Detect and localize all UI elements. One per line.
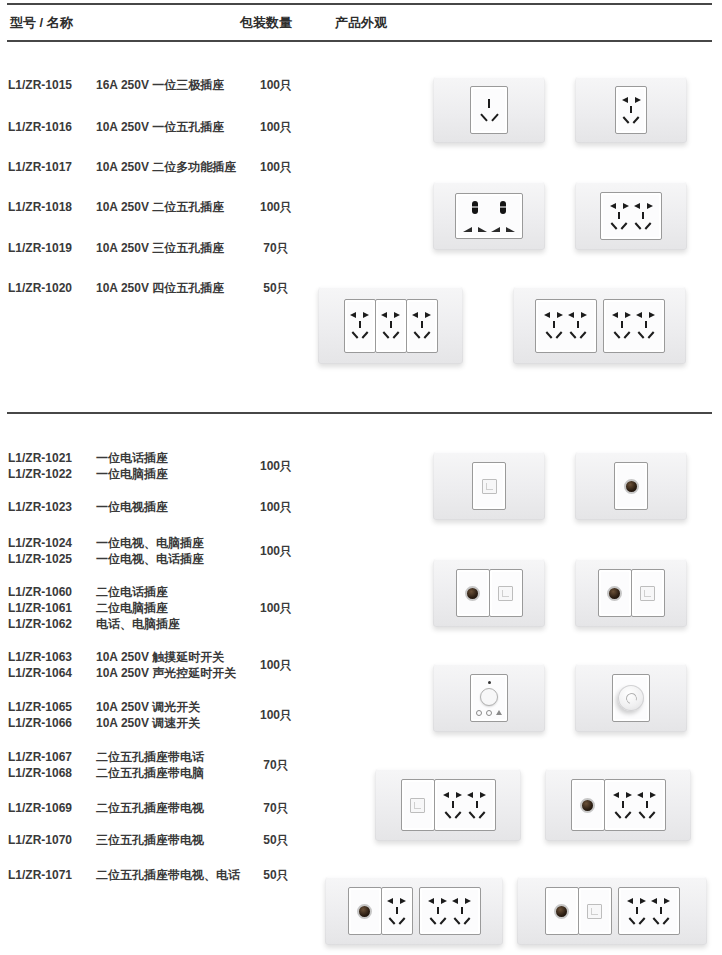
slot-neutral-icon <box>454 811 461 818</box>
module-double-five-hole-socket <box>618 887 680 935</box>
product-image-socket-tv-data-2gang-b <box>575 559 687 627</box>
product-name: 10A 250V 三位五孔插座 <box>96 240 240 256</box>
slot-left-icon <box>613 792 619 798</box>
module-group <box>614 462 648 510</box>
module-group <box>618 887 680 935</box>
slot-earth-icon <box>645 321 647 328</box>
five-hole-face <box>649 898 673 925</box>
product-name: 10A 250V 声光控延时开关 <box>96 665 240 681</box>
slot-live-icon <box>637 331 644 338</box>
slot-live-icon <box>480 113 488 121</box>
slot-live-icon <box>351 331 358 338</box>
module-group <box>612 674 650 722</box>
module-tv-socket <box>348 887 382 935</box>
model-number: L1/ZR-1016 <box>8 119 96 135</box>
slot-left-icon <box>467 792 473 798</box>
slot-left-icon <box>651 898 657 904</box>
model-number: L1/ZR-1060 <box>8 584 96 600</box>
module-tv-socket <box>545 887 579 935</box>
table-row: L1/ZR-1071二位五孔插座带电视、电话50只 <box>8 867 320 883</box>
slot-earth-icon <box>421 321 423 328</box>
model-number: L1/ZR-1023 <box>8 499 96 515</box>
package-quantity: 70只 <box>240 757 312 774</box>
slot-right-icon <box>635 97 641 103</box>
slot-earth-icon <box>476 801 478 808</box>
slot-left-icon <box>443 792 449 798</box>
package-quantity: 100只 <box>240 119 312 136</box>
five-hole-face <box>450 898 474 925</box>
table-row: L1/ZR-101810A 250V 二位五孔插座100只 <box>8 199 320 215</box>
slot-earth-icon <box>437 907 439 914</box>
three-pin-face <box>483 99 496 122</box>
table-row: L1/ZR-101610A 250V 一位五孔插座100只 <box>8 119 320 135</box>
slot-left-icon <box>350 312 356 318</box>
slot-right-icon <box>625 312 631 318</box>
touch-button <box>480 688 498 706</box>
flat-slot-left-icon <box>463 227 472 232</box>
slot-earth-icon <box>636 907 638 914</box>
product-image-socket-3pin-1gang <box>433 77 545 143</box>
model-number: L1/ZR-1071 <box>8 867 96 883</box>
slot-neutral-icon <box>361 331 368 338</box>
product-name: 10A 250V 四位五孔插座 <box>96 280 240 296</box>
module-phone-data-jack <box>401 779 435 831</box>
slot-live-icon <box>635 222 642 229</box>
model-number: L1/ZR-1063 <box>8 649 96 665</box>
package-quantity: 100只 <box>240 77 312 94</box>
product-image-socket-5hole2-tv-phone <box>517 877 707 945</box>
module-group <box>472 462 506 510</box>
slot-right-icon <box>465 898 471 904</box>
table-row: L1/ZR-1063L1/ZR-106410A 250V 触摸延时开关10A 2… <box>8 649 320 681</box>
tv-coax-port-icon <box>554 904 569 919</box>
model-number: L1/ZR-1062 <box>8 616 96 632</box>
slot-neutral-icon <box>423 331 430 338</box>
five-hole-face <box>426 898 450 925</box>
round-pin-slot-icon <box>500 201 506 214</box>
model-number: L1/ZR-1066 <box>8 715 96 731</box>
module-group <box>348 887 413 935</box>
slot-neutral-icon <box>392 331 399 338</box>
slot-live-icon <box>611 222 618 229</box>
slot-left-icon <box>634 203 640 209</box>
table-header: 型号 / 名称 包装数量 产品外观 <box>8 14 714 34</box>
column-header-model-name: 型号 / 名称 <box>10 14 73 32</box>
dimmer-knob <box>618 685 644 711</box>
triangle-glyph-icon <box>496 710 502 715</box>
model-number: L1/ZR-1017 <box>8 159 96 175</box>
slot-left-icon <box>610 203 616 209</box>
module-double-five-hole-socket <box>419 887 481 935</box>
product-image-socket-5hole-3gang <box>318 287 463 364</box>
five-hole-face <box>465 792 489 819</box>
slot-right-icon <box>363 312 369 318</box>
package-quantity: 100只 <box>240 543 312 560</box>
model-number: L1/ZR-1020 <box>8 280 96 296</box>
module-group <box>545 887 612 935</box>
package-quantity: 50只 <box>240 867 312 884</box>
module-group <box>603 299 665 353</box>
product-image-socket-multi-2gang <box>433 182 545 250</box>
slot-neutral-icon <box>624 811 631 818</box>
product-name: 电话、电脑插座 <box>96 616 240 632</box>
module-double-five-hole-socket <box>434 779 496 831</box>
slot-right-icon <box>664 898 670 904</box>
package-quantity: 50只 <box>240 832 312 849</box>
slot-neutral-icon <box>662 917 669 924</box>
model-number: L1/ZR-1068 <box>8 765 96 781</box>
slot-earth-icon <box>553 321 555 328</box>
table-row: L1/ZR-1069二位五孔插座带电视70只 <box>8 800 320 816</box>
five-hole-face <box>410 312 434 339</box>
slot-live-icon <box>388 917 395 924</box>
module-double-five-hole-socket <box>603 299 665 353</box>
module-group <box>600 192 662 240</box>
slot-live-icon <box>638 811 645 818</box>
five-hole-face <box>625 898 649 925</box>
table-row: L1/ZR-1060L1/ZR-1061L1/ZR-1062二位电话插座二位电脑… <box>8 584 320 632</box>
slot-neutral-icon <box>633 116 640 123</box>
product-name: 10A 250V 二位多功能插座 <box>96 159 240 175</box>
table-row: L1/ZR-101516A 250V 一位三极插座100只 <box>8 77 320 93</box>
model-number: L1/ZR-1067 <box>8 749 96 765</box>
package-quantity: 100只 <box>240 600 312 617</box>
slot-left-icon <box>636 312 642 318</box>
slot-neutral-icon <box>645 222 652 229</box>
model-number: L1/ZR-1015 <box>8 77 96 93</box>
slot-live-icon <box>614 811 621 818</box>
knob-mark-icon <box>624 691 639 706</box>
module-group <box>535 299 597 353</box>
five-hole-face <box>566 312 590 339</box>
five-hole-face <box>634 312 658 339</box>
product-name: 二位五孔插座带电视、电话 <box>96 867 240 883</box>
slot-right-icon <box>649 312 655 318</box>
round-pin-slot-icon <box>472 201 478 214</box>
module-phone-data-jack <box>578 887 612 935</box>
package-quantity: 100只 <box>240 199 312 216</box>
slot-right-icon <box>650 792 656 798</box>
tv-coax-port-icon <box>465 586 480 601</box>
slot-left-icon <box>612 312 618 318</box>
slot-live-icon <box>429 917 436 924</box>
product-image-socket-5hole-4gang <box>513 287 686 364</box>
slot-neutral-icon <box>463 917 470 924</box>
table-row: L1/ZR-1023一位电视插座100只 <box>8 499 320 515</box>
product-image-socket-5hole3-with-tv <box>325 877 503 945</box>
module-five-hole-socket <box>375 299 407 353</box>
product-name: 三位五孔插座带电视 <box>96 832 240 848</box>
five-hole-face <box>348 312 372 339</box>
product-name: 二位五孔插座带电脑 <box>96 765 240 781</box>
product-image-switch-touch-delay <box>433 664 545 732</box>
slot-earth-icon <box>577 321 579 328</box>
lamp-glyph-icon <box>476 710 482 716</box>
module-group <box>455 193 523 239</box>
slot-live-icon <box>652 917 659 924</box>
table-row: L1/ZR-1021L1/ZR-1022一位电话插座一位电脑插座100只 <box>8 450 320 482</box>
slot-neutral-icon <box>439 917 446 924</box>
slot-live-icon <box>628 917 635 924</box>
product-image-socket-5hole-1gang <box>575 77 687 143</box>
slot-neutral-icon <box>647 331 654 338</box>
module-tv-socket <box>456 569 490 617</box>
package-quantity: 50只 <box>240 280 312 297</box>
circle-glyph-icon <box>486 710 492 716</box>
slot-left-icon <box>637 792 643 798</box>
five-hole-face <box>607 203 631 230</box>
tv-coax-port-icon <box>357 904 372 919</box>
slot-earth-icon <box>461 907 463 914</box>
header-divider <box>7 40 712 42</box>
slot-neutral-icon <box>621 222 628 229</box>
slot-earth-icon <box>660 907 662 914</box>
universal-socket-face <box>461 194 489 238</box>
table-row: L1/ZR-1070三位五孔插座带电视50只 <box>8 832 320 848</box>
slot-neutral-icon <box>398 917 405 924</box>
catalog-page: 型号 / 名称 包装数量 产品外观 L1/ZR-101516A 250V 一位三… <box>0 0 722 955</box>
module-group <box>598 569 665 617</box>
slot-left-icon <box>544 312 550 318</box>
model-number: L1/ZR-1064 <box>8 665 96 681</box>
model-number: L1/ZR-1025 <box>8 551 96 567</box>
slot-right-icon <box>441 898 447 904</box>
slot-neutral-icon <box>579 331 586 338</box>
five-hole-face <box>611 792 635 819</box>
package-quantity: 100只 <box>240 707 312 724</box>
slot-earth-icon <box>642 212 644 219</box>
product-name: 10A 250V 二位五孔插座 <box>96 199 240 215</box>
slot-right-icon <box>557 312 563 318</box>
module-tv-socket <box>598 569 632 617</box>
five-hole-face <box>635 792 659 819</box>
product-name: 10A 250V 调速开关 <box>96 715 240 731</box>
module-five-hole-socket <box>406 299 438 353</box>
module-group <box>344 299 438 353</box>
package-quantity: 100只 <box>240 458 312 475</box>
package-quantity: 100只 <box>240 657 312 674</box>
module-tv-socket <box>614 462 648 510</box>
product-name: 10A 250V 一位五孔插座 <box>96 119 240 135</box>
slot-left-icon <box>627 898 633 904</box>
slot-left-icon <box>412 312 418 318</box>
package-quantity: 100只 <box>240 499 312 516</box>
column-header-package-qty: 包装数量 <box>240 14 292 32</box>
package-quantity: 70只 <box>240 240 312 257</box>
table-row: L1/ZR-1024L1/ZR-1025一位电视、电脑插座一位电视、电话插座10… <box>8 535 320 567</box>
slot-earth-icon <box>488 99 490 108</box>
slot-right-icon <box>623 203 629 209</box>
product-name: 二位电脑插座 <box>96 600 240 616</box>
product-image-socket-5hole2-with-phone <box>375 769 521 841</box>
module-phone-data-jack <box>489 569 523 617</box>
column-header-appearance: 产品外观 <box>335 14 387 32</box>
product-name: 一位电话插座 <box>96 450 240 466</box>
five-hole-face <box>631 203 655 230</box>
rj-port-icon <box>587 904 602 919</box>
table-row: L1/ZR-1065L1/ZR-106610A 250V 调光开关10A 250… <box>8 699 320 731</box>
slot-live-icon <box>444 811 451 818</box>
slot-left-icon <box>622 97 628 103</box>
tv-coax-port-icon <box>607 586 622 601</box>
five-hole-face <box>385 898 409 925</box>
product-name: 16A 250V 一位三极插座 <box>96 77 240 93</box>
module-dimmer-switch <box>612 674 650 722</box>
module-group <box>419 887 481 935</box>
module-double-five-hole-socket <box>600 192 662 240</box>
model-number: L1/ZR-1022 <box>8 466 96 482</box>
slot-left-icon <box>568 312 574 318</box>
module-universal-socket-pair <box>455 193 523 239</box>
model-number: L1/ZR-1065 <box>8 699 96 715</box>
slot-left-icon <box>381 312 387 318</box>
section-divider <box>7 412 712 414</box>
product-name: 10A 250V 调光开关 <box>96 699 240 715</box>
five-hole-face <box>542 312 566 339</box>
slot-neutral-icon <box>638 917 645 924</box>
slot-neutral-icon <box>648 811 655 818</box>
tv-coax-port-icon <box>580 798 595 813</box>
flat-slot-right-icon <box>506 227 515 232</box>
top-divider <box>7 3 712 5</box>
slot-right-icon <box>581 312 587 318</box>
slot-neutral-icon <box>623 331 630 338</box>
module-group <box>470 86 508 134</box>
product-name: 二位五孔插座带电视 <box>96 800 240 816</box>
module-five-hole-socket <box>615 86 647 134</box>
product-image-socket-5hole2-with-tv <box>545 769 691 841</box>
product-name: 一位电视、电脑插座 <box>96 535 240 551</box>
module-three-pin-socket <box>470 86 508 134</box>
module-phone-data-jack <box>472 462 506 510</box>
table-row: L1/ZR-1067L1/ZR-1068二位五孔插座带电话二位五孔插座带电脑70… <box>8 749 320 781</box>
model-number: L1/ZR-1070 <box>8 832 96 848</box>
product-image-socket-5hole-2gang <box>575 182 687 250</box>
module-phone-data-jack <box>631 569 665 617</box>
module-group <box>401 779 496 831</box>
table-row: L1/ZR-101910A 250V 三位五孔插座70只 <box>8 240 320 256</box>
model-number: L1/ZR-1061 <box>8 600 96 616</box>
slot-neutral-icon <box>478 811 485 818</box>
five-hole-face <box>610 312 634 339</box>
universal-socket-face <box>489 194 517 238</box>
five-hole-face <box>441 792 465 819</box>
model-number: L1/ZR-1019 <box>8 240 96 256</box>
slot-right-icon <box>647 203 653 209</box>
flat-slot-left-icon <box>491 227 500 232</box>
product-image-socket-tv-1gang <box>575 452 687 520</box>
rj-port-icon <box>482 479 497 494</box>
slot-live-icon <box>382 331 389 338</box>
module-touch-delay-switch <box>470 674 508 722</box>
table-row: L1/ZR-101710A 250V 二位多功能插座100只 <box>8 159 320 175</box>
five-hole-face <box>379 312 403 339</box>
slot-earth-icon <box>618 212 620 219</box>
module-five-hole-socket <box>344 299 376 353</box>
product-image-switch-dimmer-knob <box>575 664 687 732</box>
slot-neutral-icon <box>491 113 499 121</box>
slot-live-icon <box>468 811 475 818</box>
product-name: 一位电脑插座 <box>96 466 240 482</box>
slot-earth-icon <box>359 321 361 328</box>
product-name: 一位电视插座 <box>96 499 240 515</box>
module-tv-socket <box>571 779 605 831</box>
slot-earth-icon <box>630 106 632 113</box>
slot-live-icon <box>613 331 620 338</box>
slot-right-icon <box>400 898 406 904</box>
slot-live-icon <box>623 116 630 123</box>
product-image-socket-tv-data-2gang-a <box>433 559 545 627</box>
package-quantity: 100只 <box>240 159 312 176</box>
package-quantity: 70只 <box>240 800 312 817</box>
slot-live-icon <box>545 331 552 338</box>
product-name: 10A 250V 触摸延时开关 <box>96 649 240 665</box>
model-number: L1/ZR-1021 <box>8 450 96 466</box>
flat-slot-right-icon <box>478 227 487 232</box>
module-group <box>456 569 523 617</box>
model-number: L1/ZR-1018 <box>8 199 96 215</box>
slot-right-icon <box>480 792 486 798</box>
tv-coax-port-icon <box>624 479 639 494</box>
slot-right-icon <box>394 312 400 318</box>
rj-port-icon <box>410 798 425 813</box>
slot-earth-icon <box>621 321 623 328</box>
rj-port-icon <box>640 586 655 601</box>
product-image-socket-phone-1gang <box>433 452 545 520</box>
slot-live-icon <box>569 331 576 338</box>
slot-right-icon <box>640 898 646 904</box>
slot-earth-icon <box>452 801 454 808</box>
slot-left-icon <box>452 898 458 904</box>
slot-right-icon <box>425 312 431 318</box>
module-double-five-hole-socket <box>604 779 666 831</box>
slot-left-icon <box>387 898 393 904</box>
module-group <box>470 674 508 722</box>
model-number: L1/ZR-1069 <box>8 800 96 816</box>
slot-neutral-icon <box>555 331 562 338</box>
slot-right-icon <box>626 792 632 798</box>
slot-live-icon <box>413 331 420 338</box>
slot-live-icon <box>453 917 460 924</box>
slot-earth-icon <box>390 321 392 328</box>
rj-port-icon <box>498 586 513 601</box>
five-hole-face <box>619 97 643 124</box>
slot-earth-icon <box>396 907 398 914</box>
module-group <box>571 779 666 831</box>
product-name: 二位五孔插座带电话 <box>96 749 240 765</box>
model-number: L1/ZR-1024 <box>8 535 96 551</box>
touch-switch-face <box>471 675 507 721</box>
slot-left-icon <box>428 898 434 904</box>
led-indicator-icon <box>488 681 491 684</box>
module-five-hole-socket <box>381 887 413 935</box>
slot-right-icon <box>456 792 462 798</box>
module-double-five-hole-socket <box>535 299 597 353</box>
module-group <box>615 86 647 134</box>
table-row: L1/ZR-102010A 250V 四位五孔插座50只 <box>8 280 320 296</box>
product-name: 二位电话插座 <box>96 584 240 600</box>
slot-earth-icon <box>646 801 648 808</box>
product-name: 一位电视、电话插座 <box>96 551 240 567</box>
slot-earth-icon <box>622 801 624 808</box>
